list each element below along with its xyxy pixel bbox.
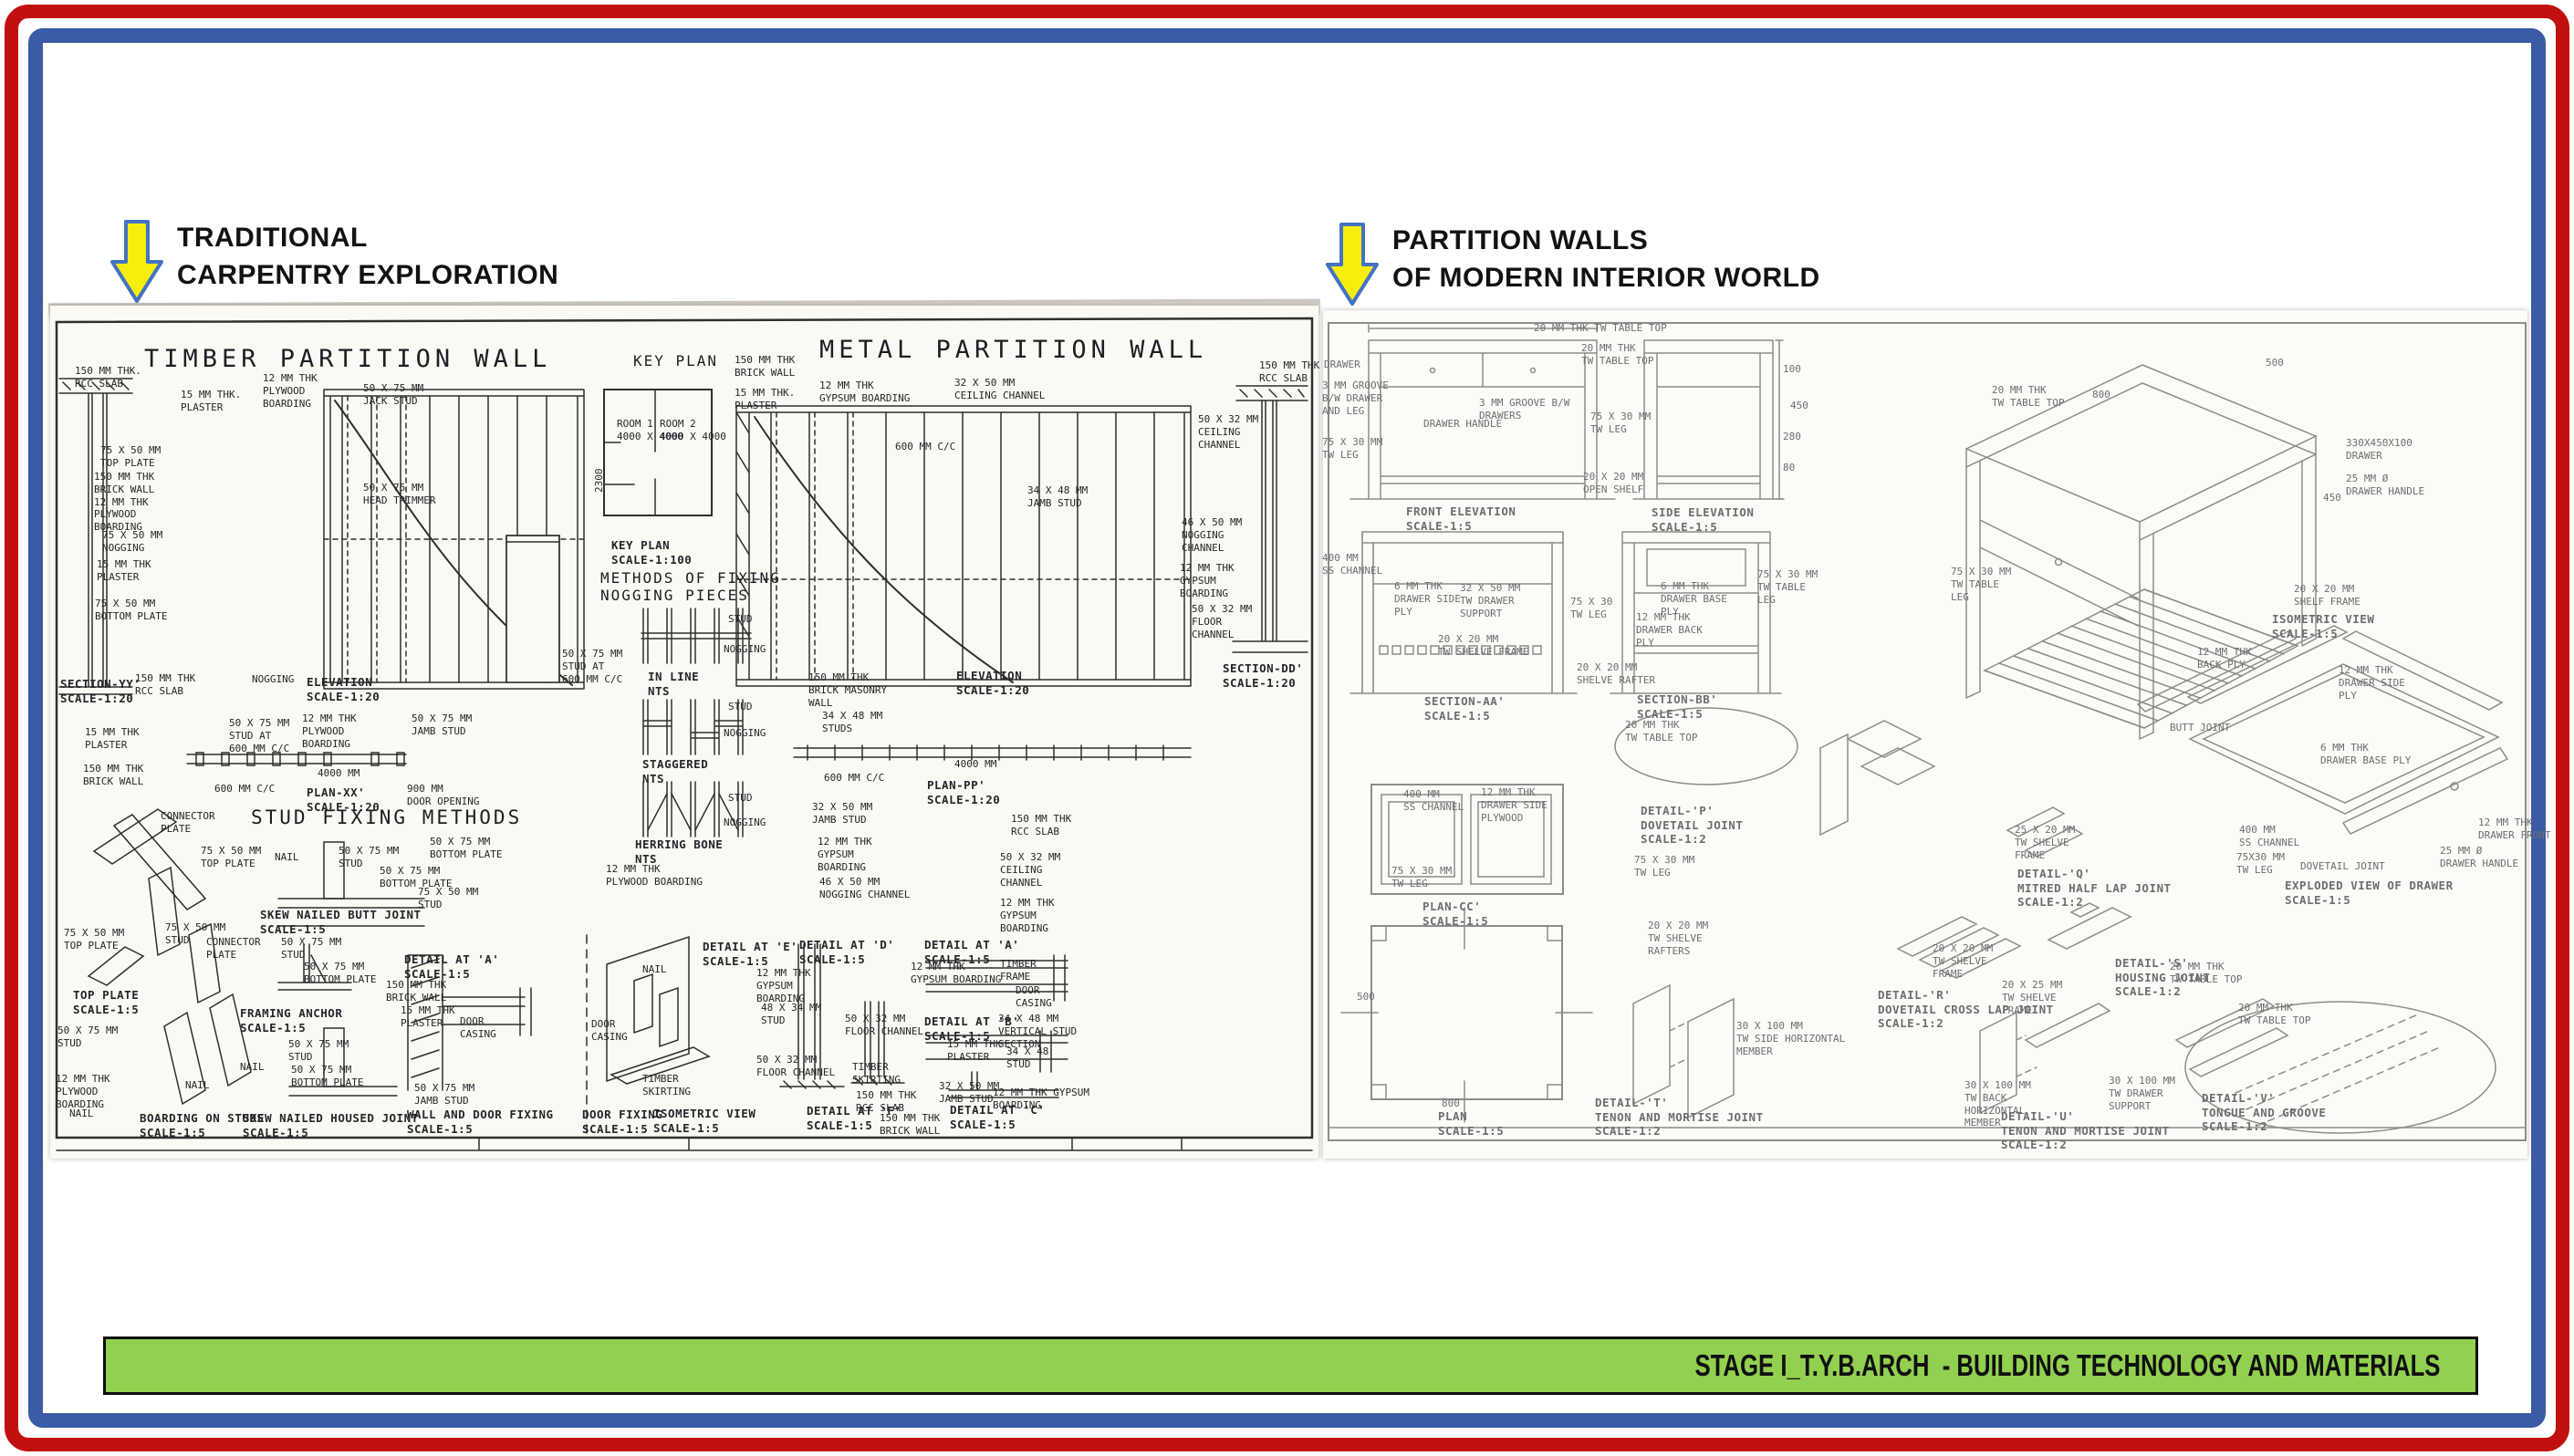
annotation-label: 50 X 75 MM HEAD TRIMMER xyxy=(363,482,435,507)
annotation-label: TIMBER SKIRTING xyxy=(642,1073,691,1098)
header-right: PARTITION WALLS OF MODERN INTERIOR WORLD xyxy=(1325,222,1820,307)
annotation-label: 20 MM THK TW TABLE TOP xyxy=(1581,342,1653,368)
annotation-label: 75 X 50 MM TOP PLATE xyxy=(64,927,124,952)
annotation-label: DOOR CASING xyxy=(591,1018,628,1044)
annotation-label: NAIL xyxy=(69,1108,94,1120)
annotation-label: STUD xyxy=(728,792,753,805)
slide: TRADITIONAL CARPENTRY EXPLORATION PARTIT… xyxy=(0,0,2574,1456)
annotation-label: STUD xyxy=(728,701,753,713)
down-arrow-icon xyxy=(1325,222,1380,307)
annotation-label: 20 X 20 MM SHELF FRAME xyxy=(2294,583,2360,608)
diagram-caption: ISOMETRIC VIEW SCALE-1:5 xyxy=(2272,612,2374,640)
annotation-label: 20 MM THK TW TABLE TOP xyxy=(1625,719,1697,744)
footer-banner: STAGE I_T.Y.B.ARCH - BUILDING TECHNOLOGY… xyxy=(103,1336,2478,1395)
annotation-label: NAIL xyxy=(642,963,667,976)
annotation-label: 150 MM THK BRICK WALL 12 MM THK PLYWOOD … xyxy=(94,471,154,534)
annotation-label: 32 X 50 MM JAMB STUD xyxy=(939,1080,999,1106)
header-right-title: PARTITION WALLS OF MODERN INTERIOR WORLD xyxy=(1392,222,1820,297)
annotation-label: 600 MM C/C xyxy=(824,772,884,785)
diagram-caption: DETAIL-'T' TENON AND MORTISE JOINT SCALE… xyxy=(1595,1096,1764,1139)
annotation-label: 12 MM THK DRAWER SIDE PLY xyxy=(2339,664,2405,702)
annotation-label: 400 MM SS CHANNEL xyxy=(1322,552,1382,577)
diagram-title-timber: TIMBER PARTITION WALL xyxy=(144,345,551,373)
annotation-label: 20 X 25 MM TW SHELVE FRAME xyxy=(2002,979,2062,1016)
annotation-label: 330X450X100 DRAWER xyxy=(2346,437,2412,463)
down-arrow-icon xyxy=(109,219,164,305)
dimension-label: 100 xyxy=(1783,363,1801,376)
diagram-caption: DETAIL-'V' TONGUE AND GROOVE SCALE-1:2 xyxy=(2202,1091,2326,1134)
header-left-line1: TRADITIONAL xyxy=(177,219,558,256)
dimension-label: 800 xyxy=(1442,1097,1460,1110)
dimension-label: 500 xyxy=(2266,357,2284,369)
diagram-caption: HERRING BONE NTS xyxy=(635,837,723,866)
annotation-label: TIMBER FRAME xyxy=(1000,958,1037,983)
diagram-caption: SKEW NAILED BUTT JOINT SCALE-1:5 xyxy=(260,908,422,936)
annotation-label: 50 X 75 MM BOTTOM PLATE xyxy=(430,836,502,861)
annotation-label: 50 X 32 MM FLOOR CHANNEL xyxy=(845,1013,923,1038)
annotation-label: 75 X 50 MM TOP PLATE xyxy=(201,845,261,870)
annotation-label: 75 X 30 MM TW TABLE LEG xyxy=(1951,566,2011,603)
annotation-label: NOGGING xyxy=(724,643,766,656)
annotation-label: TIMBER SKIRTING xyxy=(852,1061,901,1087)
annotation-label: NOGGING xyxy=(724,816,766,829)
annotation-label: 75 X 30 MM TW LEG xyxy=(1391,865,1452,890)
annotation-label: 75 X 30 MM TW LEG xyxy=(1590,411,1651,436)
annotation-label: 32 X 50 MM CEILING CHANNEL xyxy=(954,377,1045,402)
annotation-label: 75 X 50 MM TOP PLATE xyxy=(100,444,161,470)
annotation-label: 50 X 75 MM STUD AT 600 MM C/C xyxy=(562,648,622,685)
annotation-label: 150 MM THK. RCC SLAB xyxy=(75,365,141,390)
annotation-label: 400 MM SS CHANNEL xyxy=(1403,788,1464,814)
diagram-caption: DETAIL AT 'A' SCALE-1:5 xyxy=(404,952,499,981)
header-left-title: TRADITIONAL CARPENTRY EXPLORATION xyxy=(177,219,558,295)
annotation-label: 150 MM THK RCC SLAB xyxy=(135,672,195,698)
diagram-caption: FRONT ELEVATION SCALE-1:5 xyxy=(1406,504,1516,533)
annotation-label: DOVETAIL JOINT xyxy=(2300,860,2385,873)
annotation-label: 12 MM THK GYPSUM BOARDING xyxy=(911,961,1001,986)
annotation-label: 25 MM Ø DRAWER HANDLE xyxy=(2346,473,2424,498)
header-left-line2: CARPENTRY EXPLORATION xyxy=(177,256,558,294)
annotation-label: 50 X 32 MM FLOOR CHANNEL xyxy=(756,1054,835,1079)
annotation-label: 15 MM THK. PLASTER xyxy=(181,389,241,414)
diagram-title-stud-fixing: STUD FIXING METHODS xyxy=(251,806,522,828)
annotation-label: 25 MM Ø DRAWER HANDLE xyxy=(2440,845,2518,870)
diagram-caption: FRAMING ANCHOR SCALE-1:5 xyxy=(240,1006,342,1035)
annotation-label: 50 X 32 MM CEILING CHANNEL xyxy=(1198,413,1258,451)
dimension-label: 450 xyxy=(1790,400,1808,412)
diagram-caption: KEY PLAN SCALE-1:100 xyxy=(611,538,692,567)
diagram-title-metal: METAL PARTITION WALL xyxy=(819,336,1207,364)
annotation-label: 75 X 50 MM BOTTOM PLATE xyxy=(95,598,167,623)
annotation-label: 75 X 30 MM TW LEG xyxy=(1322,436,1382,462)
annotation-label: 12 MM THK GYPSUM BOARDING xyxy=(819,380,910,405)
annotation-label: 50 X 32 MM CEILING CHANNEL xyxy=(1000,851,1060,889)
diagram-caption: EXPLODED VIEW OF DRAWER SCALE-1:5 xyxy=(2285,879,2454,907)
diagram-caption: DETAIL AT 'C' SCALE-1:5 xyxy=(950,1103,1045,1131)
annotation-label: 15 MM THK. PLASTER xyxy=(735,387,795,412)
banner-text: STAGE I_T.Y.B.ARCH - BUILDING TECHNOLOGY… xyxy=(1694,1348,2475,1383)
diagram-caption: IN LINE NTS xyxy=(648,670,699,698)
annotation-label: 150 MM THK RCC SLAB xyxy=(856,1089,916,1115)
annotation-label: 50 X 75 MM STUD xyxy=(281,936,341,962)
diagram-caption: SECTION-YY' SCALE-1:20 xyxy=(60,677,141,705)
diagram-title-methods: METHODS OF FIXING NOGGING PIECES xyxy=(600,569,781,604)
annotation-label: 34 X 48 MM JAMB STUD xyxy=(1027,484,1088,510)
annotation-label: 12 MM THK BACK PLY xyxy=(2197,646,2252,671)
diagram-caption: ISOMETRIC VIEW SCALE-1:5 xyxy=(653,1107,756,1135)
dimension-label: 80 xyxy=(1783,462,1795,474)
annotation-label: 25 X 20 MM TW SHELVE FRAME xyxy=(2015,824,2075,861)
annotation-label: 12 MM THK DRAWER SIDE PLYWOOD xyxy=(1481,786,1548,824)
annotation-label: NOGGING xyxy=(252,673,294,686)
annotation-label: 75 X 30 MM TW TABLE LEG xyxy=(1757,568,1818,606)
annotation-label: NAIL xyxy=(275,851,299,864)
annotation-label: DOOR CASING xyxy=(1016,984,1052,1010)
annotation-label: 12 MM THK GYPSUM BOARDING xyxy=(1180,562,1235,599)
annotation-label: 400 MM SS CHANNEL xyxy=(2239,824,2299,849)
annotation-label: 12 MM THK GYPSUM BOARDING xyxy=(756,967,811,1004)
annotation-label: 30 X 100 MM TW DRAWER SUPPORT xyxy=(2109,1075,2175,1112)
diagram-caption: PLAN-CC' SCALE-1:5 xyxy=(1422,900,1488,928)
annotation-label: 50 X 75 MM JAMB STUD xyxy=(414,1082,474,1108)
annotation-label: NOGGING xyxy=(724,727,766,740)
annotation-label: 34 X 48 STUD xyxy=(1006,1045,1048,1071)
annotation-label: NAIL xyxy=(185,1079,210,1092)
annotation-label: DRAWER HANDLE xyxy=(1423,418,1502,431)
annotation-label: 46 X 50 MM NOGGING CHANNEL xyxy=(819,876,910,901)
annotation-label: 50 X 32 MM FLOOR CHANNEL xyxy=(1192,603,1252,640)
annotation-label: 12 MM THK PLYWOOD BOARDING xyxy=(56,1073,110,1110)
annotation-label: 12 MM THK DRAWER FRONT xyxy=(2478,816,2550,842)
diagram-caption: SECTION-BB' SCALE-1:5 xyxy=(1637,692,1717,721)
annotation-label: 6 MM THK DRAWER SIDE PLY xyxy=(1394,580,1461,618)
annotation-label: 900 MM DOOR OPENING xyxy=(407,783,479,808)
annotation-label: 20 MM THK TW TABLE TOP xyxy=(2170,961,2242,986)
diagram-caption: ELEVATION SCALE-1:20 xyxy=(307,675,380,703)
dimension-label: 500 xyxy=(1357,991,1375,1004)
annotation-label: 150 MM THK RCC SLAB xyxy=(1259,359,1319,385)
annotation-label: 600 MM C/C xyxy=(895,441,955,453)
dimension-label: 2300 xyxy=(593,469,606,494)
annotation-label: 50 X 75 MM STUD xyxy=(57,1024,118,1050)
diagram-caption: STAGGERED NTS xyxy=(642,757,708,785)
annotation-label: 15 MM THK PLASTER xyxy=(85,726,140,752)
annotation-label: 6 MM THK DRAWER BASE PLY xyxy=(2320,742,2411,767)
annotation-label: 75 X 30 TW LEG xyxy=(1570,596,1612,621)
annotation-label: 20 X 20 MM SHELVE RAFTER xyxy=(1577,661,1655,687)
annotation-label: 150 MM THK RCC SLAB xyxy=(1011,813,1071,838)
diagram-caption: DOOR FIXING SCALE-1:5 xyxy=(582,1108,662,1136)
annotation-label: 75 X 50 MM STUD xyxy=(418,886,478,911)
diagram-caption: ELEVATION SCALE-1:20 xyxy=(956,669,1029,697)
annotation-label: NAIL xyxy=(240,1061,265,1074)
header-right-line1: PARTITION WALLS xyxy=(1392,222,1820,259)
annotation-label: 20 X 20 MM TW SHELVE RAFTERS xyxy=(1648,920,1708,957)
header-left: TRADITIONAL CARPENTRY EXPLORATION xyxy=(109,219,558,305)
annotation-label: 20 MM THK TW TABLE TOP xyxy=(2238,1002,2310,1027)
annotation-label: 600 MM C/C xyxy=(214,783,275,796)
annotation-label: CONNECTOR PLATE xyxy=(161,810,215,836)
annotation-label: 4000 MM xyxy=(954,758,996,771)
annotation-label: 15 MM THK PLASTER xyxy=(947,1038,1002,1064)
annotation-label: 20 MM THK TW TABLE TOP xyxy=(1534,322,1667,335)
header-right-line2: OF MODERN INTERIOR WORLD xyxy=(1392,259,1820,296)
annotation-label: CONNECTOR PLATE xyxy=(206,936,261,962)
annotation-label: 150 MM THK BRICK WALL xyxy=(880,1112,940,1138)
annotation-label: DOOR CASING xyxy=(460,1015,496,1041)
annotation-label: 150 MM THK BRICK MASONRY WALL xyxy=(808,671,887,709)
diagram-caption: DETAIL-'P' DOVETAIL JOINT SCALE-1:2 xyxy=(1641,804,1743,847)
annotation-label: 3 MM GROOVE B/W DRAWER AND LEG xyxy=(1322,380,1389,417)
dimension-label: 450 xyxy=(2323,492,2341,504)
annotation-label: 4000 MM xyxy=(318,767,360,780)
diagram-caption: PLAN-PP' SCALE-1:20 xyxy=(927,778,1000,806)
annotation-label: 75 X 50 MM NOGGING xyxy=(102,529,162,555)
diagram-caption: PLAN-XX' SCALE-1:20 xyxy=(307,785,380,814)
annotation-label: 50 X 75 MM STUD xyxy=(288,1038,349,1064)
annotation-label: 50 X 75 MM JAMB STUD xyxy=(412,712,472,738)
annotation-label: 75X30 MM TW LEG xyxy=(2236,851,2285,877)
diagram-caption: DETAIL-'U' TENON AND MORTISE JOINT SCALE… xyxy=(2001,1109,2170,1152)
annotation-label: STUD xyxy=(728,613,753,626)
dimension-label: 280 xyxy=(1783,431,1801,443)
annotation-label: 20 X 20 MM TW SHELVE FRAME xyxy=(1933,942,1993,980)
diagram-title-keyplan: KEY PLAN xyxy=(633,352,718,369)
annotation-label: 48 X 34 MM STUD xyxy=(761,1002,821,1027)
annotation-label: 32 X 50 MM JAMB STUD xyxy=(812,801,872,827)
annotation-label: 34 X 48 MM STUDS xyxy=(822,710,882,735)
annotation-label: DRAWER xyxy=(1324,359,1360,371)
diagram-caption: DETAIL-'Q' MITRED HALF LAP JOINT SCALE-1… xyxy=(2017,867,2172,910)
diagram-caption: PLAN SCALE-1:5 xyxy=(1438,1109,1504,1138)
annotation-label: 20 X 20 MM TW SHELVE FRAME xyxy=(1438,633,1528,659)
annotation-label: 12 MM THK PLYWOOD BOARDING xyxy=(302,712,357,750)
annotation-label: 50 X 75 MM BOTTOM PLATE xyxy=(291,1064,363,1089)
annotation-label: 12 MM THK PLYWOOD BOARDING xyxy=(263,372,318,410)
annotation-label: 15 MM THK PLASTER xyxy=(97,558,151,584)
annotation-label: 150 MM THK BRICK WALL xyxy=(386,979,446,1004)
annotation-label: 50 X 75 MM STUD AT 600 MM C/C xyxy=(229,717,289,754)
diagram-caption: WALL AND DOOR FIXING SCALE-1:5 xyxy=(407,1108,554,1136)
annotation-label: 32 X 50 MM TW DRAWER SUPPORT xyxy=(1460,582,1520,619)
diagram-caption: SIDE ELEVATION SCALE-1:5 xyxy=(1652,505,1754,534)
annotation-label: 12 MM THK GYPSUM BOARDING xyxy=(818,836,872,873)
annotation-label: 15 MM THK PLASTER xyxy=(401,1004,455,1030)
annotation-label: 20 X 20 MM OPEN SHELF xyxy=(1583,471,1643,496)
annotation-label: 12 MM THK DRAWER BACK PLY xyxy=(1636,611,1703,649)
annotation-label: 20 MM THK TW TABLE TOP xyxy=(1992,384,2064,410)
annotation-label: 150 MM THK BRICK WALL xyxy=(735,354,795,380)
annotation-label: 12 MM THK PLYWOOD BOARDING xyxy=(606,863,703,889)
annotation-label: 75 X 30 MM TW LEG xyxy=(1634,854,1694,879)
diagram-caption: SECTION-AA' SCALE-1:5 xyxy=(1424,694,1505,723)
annotation-label: 12 MM THK GYPSUM BOARDING xyxy=(1000,897,1055,934)
diagram-caption: TOP PLATE SCALE-1:5 xyxy=(73,988,139,1016)
dimension-label: 800 xyxy=(2092,389,2110,401)
annotation-label: 50 X 75 MM BOTTOM PLATE xyxy=(304,961,376,986)
annotation-label: ROOM 2 4000 X 4000 xyxy=(660,418,726,443)
annotation-label: 30 X 100 MM TW SIDE HORIZONTAL MEMBER xyxy=(1736,1020,1845,1057)
diagram-caption: DETAIL AT 'D' SCALE-1:5 xyxy=(799,938,894,966)
annotation-label: 150 MM THK BRICK WALL xyxy=(83,763,143,788)
diagram-caption: SECTION-DD' SCALE-1:20 xyxy=(1223,661,1303,690)
annotation-label: BUTT JOINT xyxy=(2170,722,2230,734)
diagram-caption: SKEW NAILED HOUSED JOINT SCALE-1:5 xyxy=(243,1111,419,1139)
diagram-caption: DETAIL AT 'E' SCALE-1:5 xyxy=(703,940,797,968)
annotation-label: 46 X 50 MM NOGGING CHANNEL xyxy=(1182,516,1242,554)
annotation-label: 50 X 75 MM JACK STUD xyxy=(363,382,423,408)
